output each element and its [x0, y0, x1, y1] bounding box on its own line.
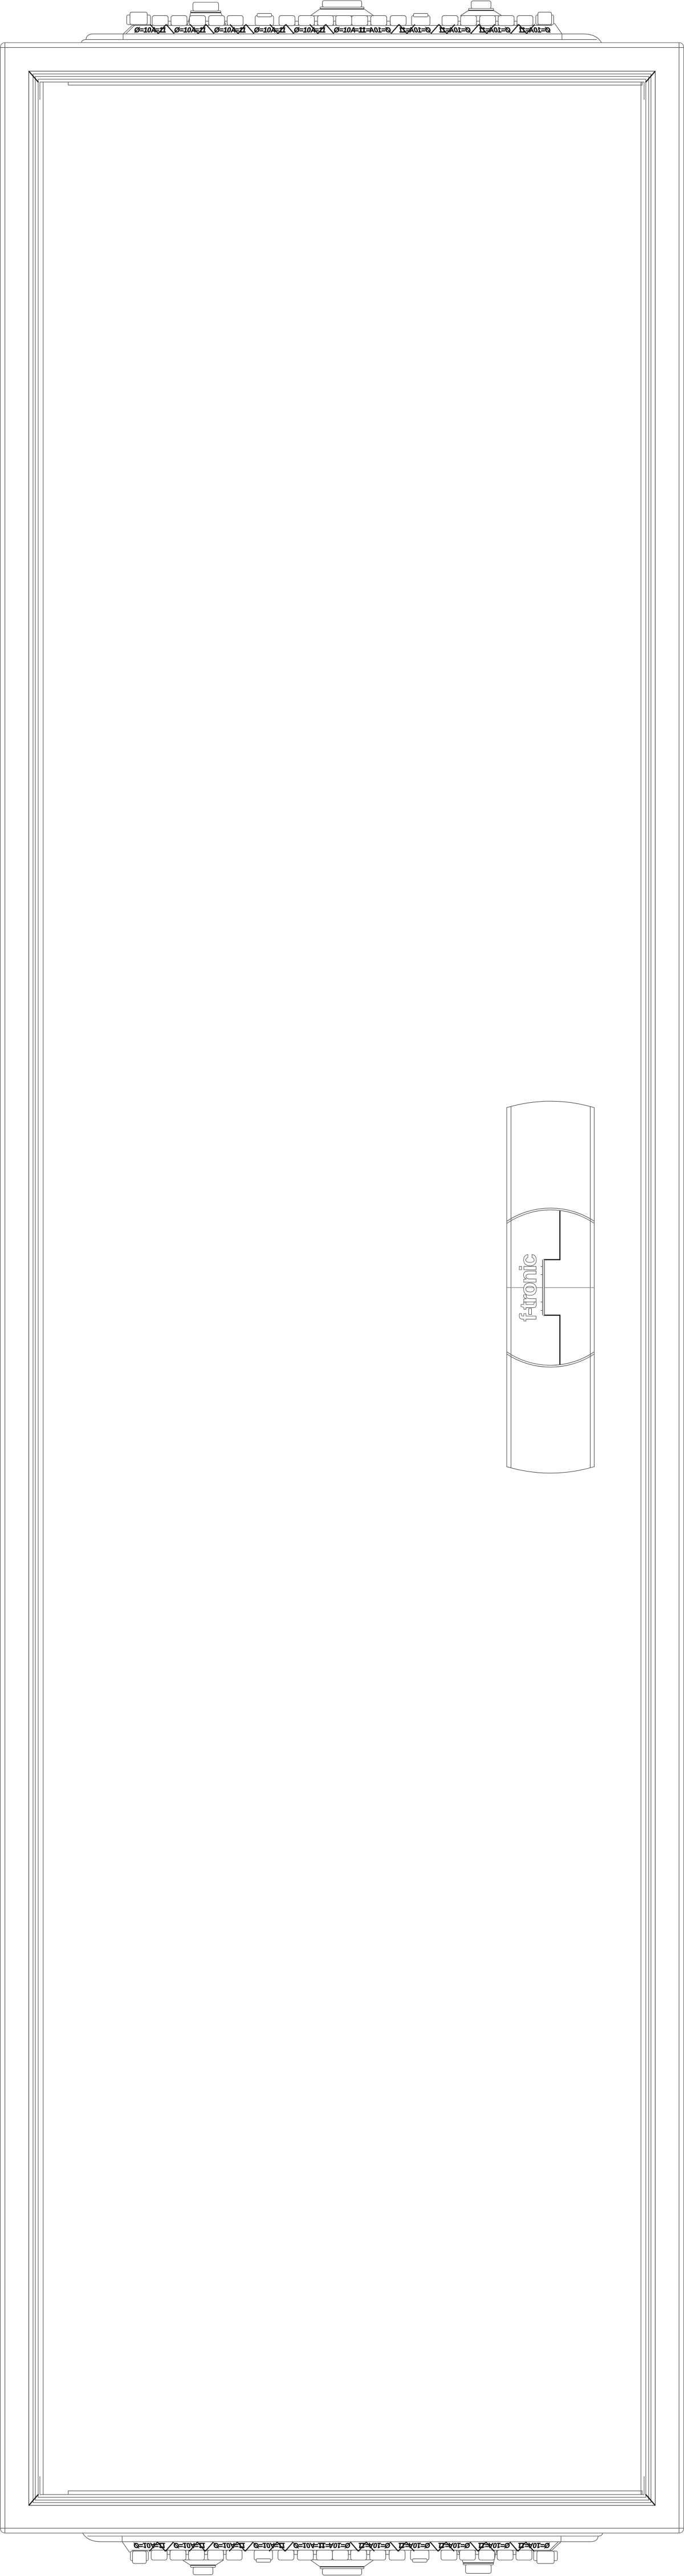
svg-text:=11: =11 [154, 2541, 166, 2549]
svg-text:Ø=10A: Ø=10A [448, 2541, 470, 2549]
svg-text:=11: =11 [275, 26, 286, 34]
svg-text:=11: =11 [439, 26, 450, 34]
svg-text:Ø=10A: Ø=10A [369, 26, 391, 34]
svg-text:Ø=10A: Ø=10A [408, 2541, 430, 2549]
svg-text:Ø=10A: Ø=10A [334, 26, 356, 34]
svg-text:=11: =11 [518, 2541, 530, 2549]
svg-text:Ø=10A: Ø=10A [254, 26, 276, 34]
svg-text:=11: =11 [194, 2541, 206, 2549]
svg-text:Ø=10A: Ø=10A [528, 2541, 549, 2549]
svg-text:=11: =11 [519, 26, 530, 34]
svg-text:Ø=10A: Ø=10A [135, 26, 156, 34]
svg-text:Ø=10A: Ø=10A [489, 26, 511, 34]
svg-text:f-tronic: f-tronic [515, 1254, 541, 1322]
svg-text:Ø=10A: Ø=10A [328, 2541, 350, 2549]
svg-text:Ø=10A: Ø=10A [449, 26, 471, 34]
svg-text:Ø=10A: Ø=10A [213, 2541, 235, 2549]
svg-text:=11: =11 [398, 2541, 410, 2549]
svg-text:=11: =11 [438, 2541, 450, 2549]
svg-text:=11: =11 [235, 26, 246, 34]
svg-text:=11: =11 [399, 26, 410, 34]
svg-text:Ø=10A: Ø=10A [173, 2541, 195, 2549]
svg-text:Ø=10A: Ø=10A [133, 2541, 155, 2549]
svg-text:Ø=10A: Ø=10A [368, 2541, 390, 2549]
svg-text:Ø=10A: Ø=10A [488, 2541, 510, 2549]
svg-text:Ø=10A: Ø=10A [409, 26, 431, 34]
svg-text:=11: =11 [274, 2541, 286, 2549]
svg-text:=11: =11 [234, 2541, 246, 2549]
svg-text:=11: =11 [155, 26, 166, 34]
svg-text:Ø=10A: Ø=10A [529, 26, 551, 34]
svg-text:=11: =11 [478, 2541, 490, 2549]
svg-text:=11: =11 [195, 26, 206, 34]
svg-text:=11: =11 [314, 2541, 325, 2549]
svg-text:Ø=10A: Ø=10A [174, 26, 196, 34]
svg-text:Ø=10A: Ø=10A [253, 2541, 275, 2549]
svg-text:=11: =11 [359, 26, 370, 34]
svg-text:=11: =11 [479, 26, 490, 34]
svg-text:Ø=10A: Ø=10A [294, 26, 316, 34]
svg-text:=11: =11 [359, 2541, 370, 2549]
svg-text:Ø=10A: Ø=10A [214, 26, 236, 34]
svg-text:Ø=10A: Ø=10A [293, 2541, 315, 2549]
svg-text:=11: =11 [315, 26, 326, 34]
